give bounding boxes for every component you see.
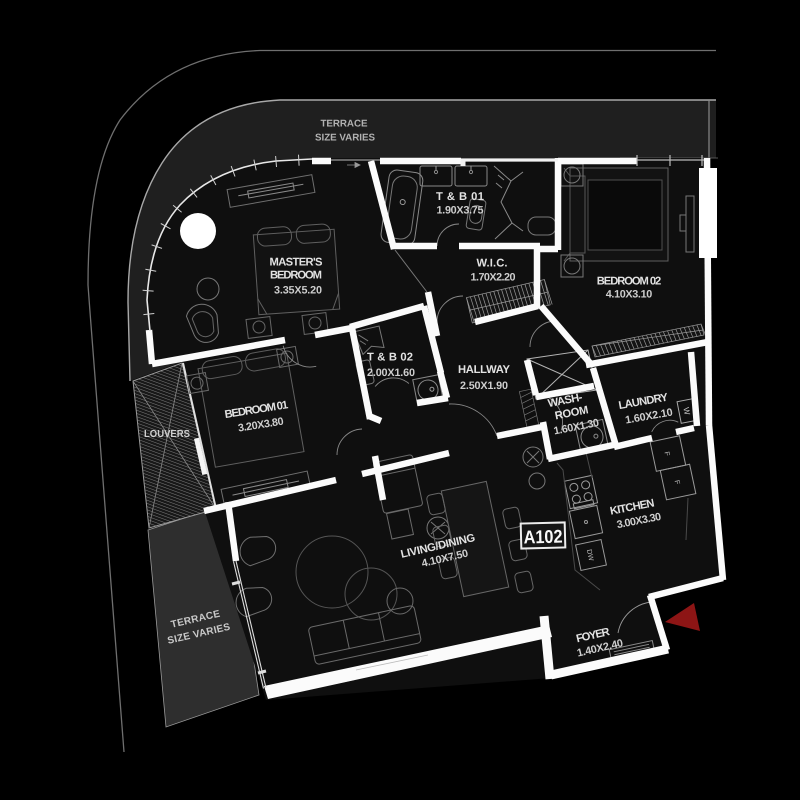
svg-text:2.00X1.60: 2.00X1.60 bbox=[367, 367, 415, 379]
svg-text:SIZE VARIES: SIZE VARIES bbox=[315, 133, 375, 144]
svg-text:T & B 01: T & B 01 bbox=[436, 191, 484, 203]
svg-text:4.10X3.10: 4.10X3.10 bbox=[606, 289, 653, 301]
svg-text:BEDROOM 02: BEDROOM 02 bbox=[597, 276, 662, 288]
svg-text:T & B 02: T & B 02 bbox=[367, 352, 413, 364]
svg-text:LOUVERS: LOUVERS bbox=[144, 429, 190, 440]
svg-text:BEDROOM: BEDROOM bbox=[270, 270, 322, 282]
svg-text:A102: A102 bbox=[523, 525, 563, 547]
svg-text:2.50X1.90: 2.50X1.90 bbox=[460, 380, 508, 392]
svg-text:MASTER'S: MASTER'S bbox=[270, 257, 324, 269]
svg-text:3.35X5.20: 3.35X5.20 bbox=[274, 285, 322, 297]
svg-text:1.90X3.75: 1.90X3.75 bbox=[437, 205, 484, 217]
svg-text:HALLWAY: HALLWAY bbox=[458, 364, 511, 376]
svg-text:W.I.C.: W.I.C. bbox=[477, 258, 508, 270]
svg-text:1.70X2.20: 1.70X2.20 bbox=[471, 272, 516, 284]
svg-text:TERRACE: TERRACE bbox=[321, 119, 368, 130]
